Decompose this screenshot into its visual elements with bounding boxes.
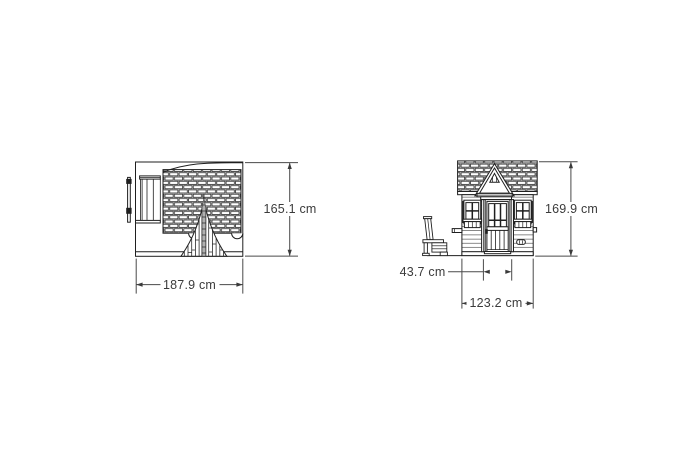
left-wall-bracket bbox=[452, 229, 462, 233]
side-chair bbox=[423, 217, 448, 256]
arrow-down-icon bbox=[569, 250, 573, 256]
front-view-drawing bbox=[423, 161, 578, 309]
arrow-right-icon bbox=[236, 283, 242, 287]
arrow-up-icon bbox=[288, 163, 292, 169]
arrow-right-icon bbox=[527, 301, 533, 305]
front-width-label: 123.2 cm bbox=[466, 296, 525, 310]
side-view-drawing bbox=[126, 162, 298, 294]
arrow-left-icon bbox=[483, 270, 489, 274]
door-threshold bbox=[484, 252, 510, 254]
side-door-center-pole bbox=[202, 198, 206, 256]
side-height-label: 165.1 cm bbox=[260, 202, 319, 216]
arrow-left-icon bbox=[136, 283, 142, 287]
arrow-up-icon bbox=[569, 162, 573, 168]
dimension-diagram-canvas: 165.1 cm 187.9 cm 169.9 cm 43.7 cm 123.2… bbox=[0, 0, 700, 450]
front-door bbox=[484, 200, 510, 254]
shutter-hinge-top bbox=[126, 179, 131, 184]
wall-vent bbox=[517, 240, 526, 245]
front-height-label: 169.9 cm bbox=[542, 202, 601, 216]
front-window-right bbox=[514, 200, 534, 227]
shutter-hinge-bottom bbox=[126, 208, 131, 214]
right-wall-bracket bbox=[533, 228, 536, 232]
front-door-width-label: 43.7 cm bbox=[397, 265, 449, 279]
arrow-right-icon bbox=[505, 270, 511, 274]
side-width-label: 187.9 cm bbox=[160, 278, 219, 292]
door-handle bbox=[486, 229, 488, 234]
diagram-artwork bbox=[0, 0, 700, 450]
arrow-down-icon bbox=[288, 250, 292, 256]
front-window-left bbox=[462, 200, 482, 227]
